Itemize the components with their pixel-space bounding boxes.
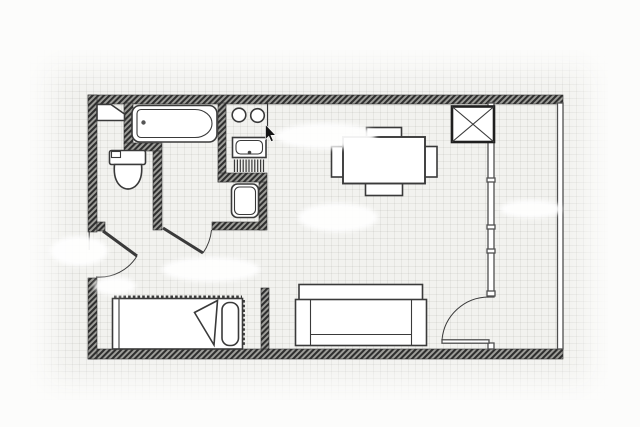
- cursor-layer: [0, 0, 640, 427]
- floor-plan-image: [0, 0, 640, 427]
- mouse-cursor-icon: [266, 125, 276, 142]
